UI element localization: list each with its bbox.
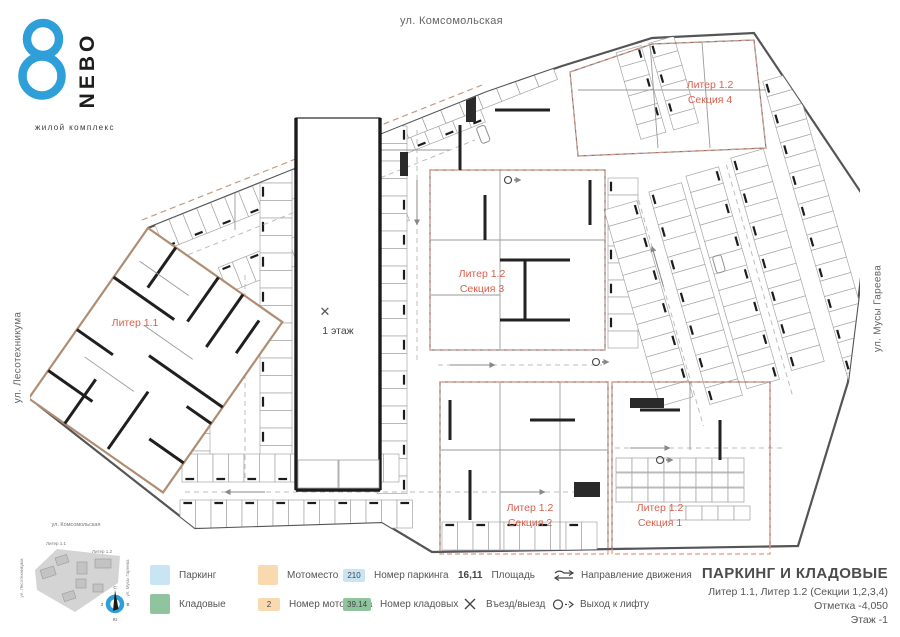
legend-area: 16,11 Площадь xyxy=(458,564,545,586)
section4-sub: Секция 4 xyxy=(688,94,732,106)
minimap-street-top: ул. Комсомольская xyxy=(52,522,101,528)
moto-swatch xyxy=(258,565,278,585)
floor-plan: ✕ 1 этаж Литер 1.2 Секция 4 Литер 1.2 Се… xyxy=(30,30,860,560)
legend-column-1: Паркинг Кладовые xyxy=(150,564,226,622)
legend-lift: Выход к лифту xyxy=(552,593,692,615)
compass-w: З xyxy=(101,602,104,607)
legend-storage-label: Кладовые xyxy=(179,599,226,610)
section3-sub: Секция 3 xyxy=(460,283,504,295)
ramp-block: ✕ 1 этаж xyxy=(296,118,380,490)
liter11-label: Литер 1.1 xyxy=(112,317,159,329)
legend-parking: Паркинг xyxy=(150,564,226,586)
sheet-subtitle: Литер 1.1, Литер 1.2 (Секции 1,2,3,4) xyxy=(702,585,888,599)
parking-stall-row xyxy=(180,500,413,528)
area-value: 16,11 xyxy=(458,570,482,581)
street-label-right: ул. Мусы Гареева xyxy=(873,249,884,369)
section1-label: Литер 1.2 xyxy=(637,502,684,514)
parking-number-badge: 210 xyxy=(343,569,365,582)
compass-e: В xyxy=(126,602,129,607)
storage-number-badge: 39.14 xyxy=(343,598,371,611)
floor1-label: 1 этаж xyxy=(322,325,353,337)
legend-column-4: 16,11 Площадь Въезд/выезд xyxy=(458,564,545,622)
legend-lift-label: Выход к лифту xyxy=(580,599,649,610)
street-label-top: ул. Комсомольская xyxy=(400,15,503,27)
legend-direction: Направление движения xyxy=(552,564,692,586)
compass-n: С xyxy=(113,585,117,590)
street-label-left: ул. Лесотехникума xyxy=(13,298,24,418)
section3-label: Литер 1.2 xyxy=(459,268,506,280)
parking-stall-row xyxy=(260,148,292,463)
storage-cell-row xyxy=(616,473,744,487)
lift-exit-icon xyxy=(552,598,576,611)
legend-entry-label: Въезд/выезд xyxy=(486,599,545,610)
legend-column-5: Направление движения Выход к лифту xyxy=(552,564,692,622)
legend-moto-label: Мотоместо xyxy=(287,570,338,581)
sheet-mark: Отметка -4,050 xyxy=(702,599,888,613)
legend-parking-label: Паркинг xyxy=(179,570,216,581)
sheet-title: ПАРКИНГ И КЛАДОВЫЕ xyxy=(702,565,888,582)
section2-label: Литер 1.2 xyxy=(507,502,554,514)
minimap-street-right: ул. Мусы Гареева xyxy=(125,559,130,597)
legend-storage-number: 39.14 Номер кладовых xyxy=(343,593,458,615)
minimap: ул. Комсомольская ул. Лесотехникума ул. … xyxy=(16,516,144,636)
minimap-liter12-label: Литер 1.2 xyxy=(92,549,112,554)
legend-area-label: Площадь xyxy=(491,570,535,581)
legend-storage: Кладовые xyxy=(150,593,226,615)
title-block: ПАРКИНГ И КЛАДОВЫЕ Литер 1.1, Литер 1.2 … xyxy=(702,565,888,627)
storage-cell-row xyxy=(616,458,744,472)
section1-sub: Секция 1 xyxy=(638,517,682,529)
section2-sub: Секция 2 xyxy=(508,517,552,529)
section4-label: Литер 1.2 xyxy=(687,79,734,91)
legend-parking-number: 210 Номер паркинга xyxy=(343,564,458,586)
legend-direction-label: Направление движения xyxy=(581,570,692,581)
entry-exit-marker: ✕ xyxy=(320,304,331,319)
legend-storage-number-label: Номер кладовых xyxy=(380,599,458,610)
legend-column-3: 210 Номер паркинга 39.14 Номер кладовых xyxy=(343,564,458,622)
legend-entry: Въезд/выезд xyxy=(458,593,545,615)
storage-cell-row xyxy=(616,488,744,502)
parking-swatch xyxy=(150,565,170,585)
direction-icon xyxy=(552,569,576,582)
entry-exit-icon xyxy=(458,598,482,610)
legend-parking-number-label: Номер паркинга xyxy=(374,570,449,581)
sheet-floor: Этаж -1 xyxy=(702,613,888,627)
page-canvas: NEBO жилой комплекс ул. Комсомольская ул… xyxy=(0,0,900,637)
moto-number-badge: 2 xyxy=(258,598,280,611)
compass-s: Ю xyxy=(113,617,118,622)
minimap-street-left: ул. Лесотехникума xyxy=(19,558,24,597)
storage-swatch xyxy=(150,594,170,614)
minimap-liter11-label: Литер 1.1 xyxy=(46,541,66,546)
